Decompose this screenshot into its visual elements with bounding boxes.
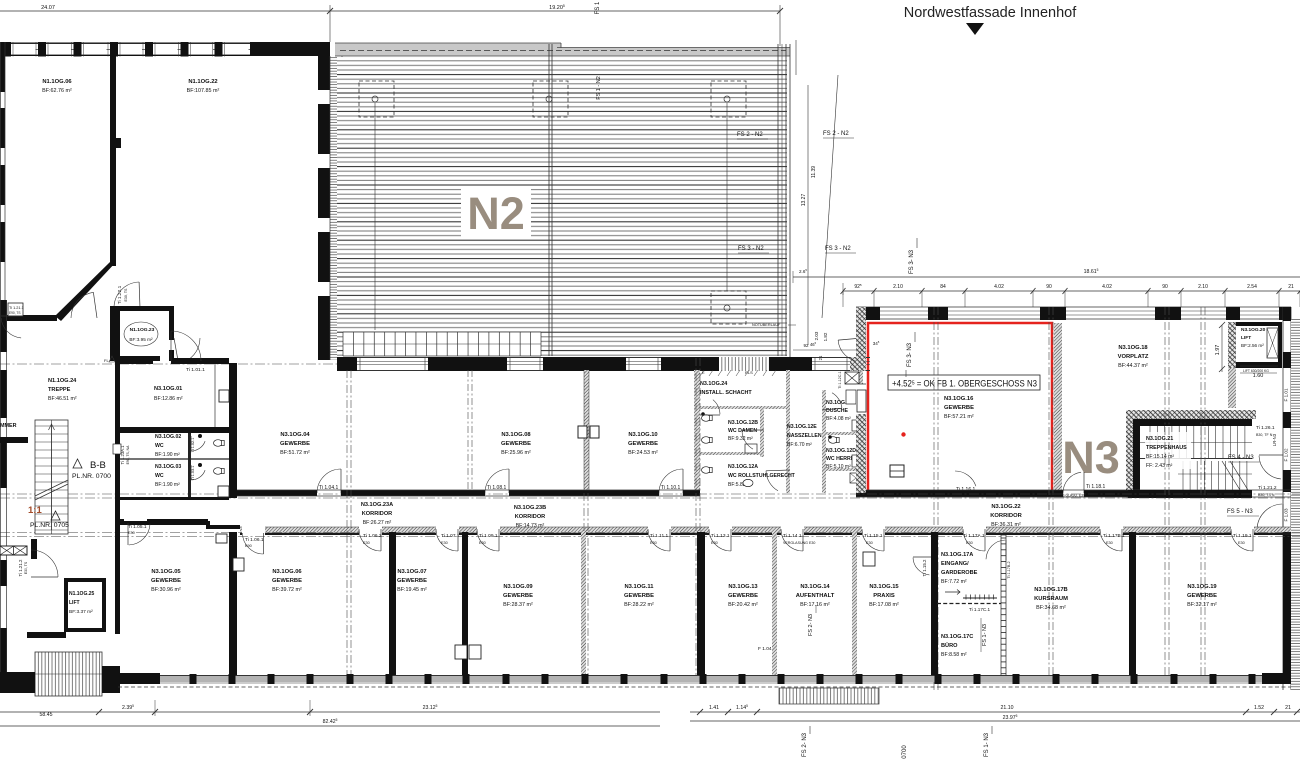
svg-text:N3.1OG.19: N3.1OG.19 <box>1187 584 1217 590</box>
svg-text:23.125: 23.125 <box>423 704 438 711</box>
svg-text:BF:2.56 m²: BF:2.56 m² <box>1241 343 1264 348</box>
svg-text:Ti 1.05.1: Ti 1.05.1 <box>128 524 147 530</box>
svg-text:WC DAMEN: WC DAMEN <box>728 428 757 434</box>
svg-text:Ti 1.02.1: Ti 1.02.1 <box>191 438 195 453</box>
svg-text:B-B: B-B <box>90 460 106 471</box>
svg-text:BF:3.37 m²: BF:3.37 m² <box>69 609 93 615</box>
svg-text:Ti 1.22.1: Ti 1.22.1 <box>117 285 123 304</box>
svg-text:1.41: 1.41 <box>709 705 719 711</box>
svg-text:KORRIDOR: KORRIDOR <box>990 513 1022 519</box>
svg-text:N3.1OG.23B: N3.1OG.23B <box>514 505 546 511</box>
svg-text:F 1.01: F 1.01 <box>1284 388 1289 401</box>
svg-text:N3: N3 <box>1062 432 1120 483</box>
svg-text:BF:25.96 m²: BF:25.96 m² <box>501 450 531 456</box>
svg-text:Ti 1.13.1: Ti 1.13.1 <box>711 533 730 539</box>
svg-text:BF:3.95 m²: BF:3.95 m² <box>129 337 153 342</box>
svg-text:11.39: 11.39 <box>811 166 817 178</box>
svg-text:Ti 1.23A.1: Ti 1.23A.1 <box>120 445 125 465</box>
svg-text:F 1.02: F 1.02 <box>1284 448 1289 461</box>
svg-text:E30: E30 <box>128 531 135 535</box>
svg-text:BF:19.45 m²: BF:19.45 m² <box>397 587 427 593</box>
svg-text:1.97: 1.97 <box>1215 345 1221 356</box>
svg-text:BF:9.32 m²: BF:9.32 m² <box>728 436 753 442</box>
svg-text:VERGLASUNG E30: VERGLASUNG E30 <box>783 541 815 545</box>
svg-text:Ti 1.17B.1: Ti 1.17B.1 <box>1103 533 1125 539</box>
svg-text:1.52: 1.52 <box>1254 705 1264 711</box>
svg-text:+4.525 = OK FB 1. OBERGESCHOSS: +4.525 = OK FB 1. OBERGESCHOSS N3 <box>892 379 1037 389</box>
svg-text:BF:20.42 m²: BF:20.42 m² <box>728 602 758 608</box>
svg-text:N3.1OG.07: N3.1OG.07 <box>397 569 426 575</box>
svg-text:BF:8.58 m²: BF:8.58 m² <box>941 652 967 658</box>
svg-text:E90: E90 <box>245 544 252 548</box>
svg-text:GEWERBE: GEWERBE <box>501 441 531 447</box>
svg-text:Ti 1.17C.1: Ti 1.17C.1 <box>969 607 990 612</box>
svg-text:90: 90 <box>1162 284 1168 290</box>
svg-text:N1.1OG.24: N1.1OG.24 <box>48 378 77 384</box>
svg-text:GEWERBE: GEWERBE <box>944 405 974 411</box>
svg-text:E30: E30 <box>1106 541 1113 545</box>
svg-text:N3.1OG.10: N3.1OG.10 <box>628 432 657 438</box>
svg-text:E30: E30 <box>441 541 448 545</box>
svg-text:82.425: 82.425 <box>323 718 338 725</box>
svg-text:N3.1OG.12A: N3.1OG.12A <box>728 464 758 470</box>
svg-text:13.27: 13.27 <box>801 194 807 207</box>
svg-text:FS 3- N3: FS 3- N3 <box>909 249 915 274</box>
svg-text:KORRIDOR: KORRIDOR <box>362 511 392 517</box>
svg-text:AUFENTHALT: AUFENTHALT <box>796 593 835 599</box>
svg-text:F 1.03: F 1.03 <box>1284 508 1289 521</box>
svg-text:WC: WC <box>155 473 164 479</box>
svg-text:FS 5 - N3: FS 5 - N3 <box>1227 509 1253 515</box>
svg-text:E30: E30 <box>966 541 973 545</box>
svg-text:E30: E30 <box>1238 541 1245 545</box>
svg-text:BF:57.21 m²: BF:57.21 m² <box>944 414 974 420</box>
svg-text:FS 2 - N2: FS 2 - N2 <box>737 132 763 138</box>
svg-text:N3.1OG.06: N3.1OG.06 <box>272 569 302 575</box>
svg-text:N3.1OG.17A: N3.1OG.17A <box>941 552 973 558</box>
svg-text:WC ROLLSTUHLGERECHT: WC ROLLSTUHLGERECHT <box>728 473 796 479</box>
svg-text:N3.1OG.18: N3.1OG.18 <box>1118 345 1148 351</box>
svg-text:FS 1- N3: FS 1- N3 <box>984 732 990 757</box>
svg-text:GEWERBE: GEWERBE <box>503 593 533 599</box>
svg-text:BF:17.16 m²: BF:17.16 m² <box>800 602 830 608</box>
svg-text:Ti 1.17A.1: Ti 1.17A.1 <box>963 533 985 539</box>
svg-text:WC: WC <box>155 443 164 449</box>
svg-text:Ti 1.21.2: Ti 1.21.2 <box>18 559 23 576</box>
svg-text:E90, TS, NA: E90, TS, NA <box>126 445 130 465</box>
svg-text:N1.1OG.06: N1.1OG.06 <box>42 79 72 85</box>
svg-text:Ti 1.06.2: Ti 1.06.2 <box>363 533 382 539</box>
svg-text:FS 3- N3: FS 3- N3 <box>907 342 913 367</box>
svg-text:EINGANG/: EINGANG/ <box>941 561 969 567</box>
svg-text:E30: E30 <box>650 541 657 545</box>
svg-text:Ti 1.19.1: Ti 1.19.1 <box>1233 533 1252 539</box>
svg-text:BF:46.51 m²: BF:46.51 m² <box>48 396 77 402</box>
svg-text:N3.1OG.15: N3.1OG.15 <box>869 584 899 590</box>
svg-text:PL.NR. 0705: PL.NR. 0705 <box>30 522 69 529</box>
svg-text:N3.1OG.23A: N3.1OG.23A <box>361 502 393 508</box>
svg-text:N3.1OG.22: N3.1OG.22 <box>991 504 1020 510</box>
svg-text:N3.1OG.13: N3.1OG.13 <box>728 584 758 590</box>
svg-text:E30: E30 <box>479 541 486 545</box>
svg-text:BF:30.96 m²: BF:30.96 m² <box>151 587 181 593</box>
svg-text:N3.1OG.12D: N3.1OG.12D <box>826 448 856 454</box>
svg-text:N3.1OG.14: N3.1OG.14 <box>800 584 830 590</box>
svg-text:E90, TS: E90, TS <box>9 311 20 315</box>
svg-text:N3.1OG.24: N3.1OG.24 <box>700 381 727 387</box>
svg-text:BF:32.17 m²: BF:32.17 m² <box>1187 602 1217 608</box>
svg-text:F 1.04: F 1.04 <box>758 646 772 652</box>
svg-text:BF:51.72 m²: BF:51.72 m² <box>280 450 310 456</box>
svg-text:N3.1OG.12B: N3.1OG.12B <box>728 420 758 426</box>
svg-text:BF:6.70 m²: BF:6.70 m² <box>787 442 812 448</box>
svg-text:GEWERBE: GEWERBE <box>624 593 654 599</box>
svg-text:E30: E30 <box>711 541 718 545</box>
svg-text:BF:62.76 m²: BF:62.76 m² <box>42 88 72 94</box>
svg-text:Ti 1.01.1: Ti 1.01.1 <box>186 367 205 373</box>
svg-text:N3.1OG.01: N3.1OG.01 <box>154 386 182 392</box>
svg-text:21: 21 <box>1288 284 1294 290</box>
svg-text:Ti 1.11.1: Ti 1.11.1 <box>650 533 668 539</box>
svg-text:2.10: 2.10 <box>893 284 903 290</box>
svg-text:58.45: 58.45 <box>40 712 53 718</box>
svg-text:B30, TF N: B30, TF N <box>1256 433 1273 437</box>
svg-text:FS 1- N3: FS 1- N3 <box>982 624 988 646</box>
svg-text:N3.1OG.02: N3.1OG.02 <box>155 434 181 440</box>
svg-text:GEWERBE: GEWERBE <box>728 593 758 599</box>
svg-text:E30: E30 <box>363 541 370 545</box>
svg-text:FS 2- N3: FS 2- N3 <box>802 732 808 757</box>
svg-text:N1.1OG.23: N1.1OG.23 <box>130 327 155 333</box>
svg-text:21: 21 <box>1285 705 1291 711</box>
svg-text:N3.1OG.20: N3.1OG.20 <box>1241 327 1266 333</box>
svg-text:KURSRAUM: KURSRAUM <box>1034 596 1068 602</box>
svg-text:B30, TS N: B30, TS N <box>1258 493 1275 497</box>
svg-text:LIFT: LIFT <box>69 600 80 606</box>
svg-text:1.82: 1.82 <box>823 332 828 341</box>
svg-text:BF:15.14 m²: BF:15.14 m² <box>1146 454 1174 460</box>
svg-text:TREPPE: TREPPE <box>48 387 71 393</box>
svg-text:LIFT 630/200 KG: LIFT 630/200 KG <box>1243 369 1269 373</box>
svg-text:PL.NR. 0700: PL.NR. 0700 <box>72 473 111 480</box>
svg-text:KORRIDOR: KORRIDOR <box>515 514 545 520</box>
svg-text:N3.1OG.08: N3.1OG.08 <box>501 432 531 438</box>
svg-text:N3.1OG.17C: N3.1OG.17C <box>941 634 973 640</box>
svg-text:RLS: RLS <box>745 370 753 375</box>
svg-text:BF:26.27 m²: BF:26.27 m² <box>363 520 392 526</box>
svg-text:Ti 1.12C.1: Ti 1.12C.1 <box>838 371 842 388</box>
svg-text:GEWERBE: GEWERBE <box>628 441 658 447</box>
svg-text:GARDEROBE: GARDEROBE <box>941 570 978 576</box>
svg-text:N3.1OG.16: N3.1OG.16 <box>944 396 974 402</box>
svg-text:NASSZELLEN: NASSZELLEN <box>787 433 822 439</box>
svg-text:Ti 1.06.1: Ti 1.06.1 <box>245 537 264 543</box>
svg-text:BF:12.86 m²: BF:12.86 m² <box>154 396 183 402</box>
svg-text:90: 90 <box>1046 284 1052 290</box>
svg-text:84: 84 <box>940 284 946 290</box>
svg-text:BF:44.37 m²: BF:44.37 m² <box>1118 363 1148 369</box>
svg-text:FS 2 - N2: FS 2 - N2 <box>823 131 849 137</box>
svg-text:N3.1OG.09: N3.1OG.09 <box>503 584 533 590</box>
svg-text:24.07: 24.07 <box>41 5 55 11</box>
svg-text:Ti 1.09.1: Ti 1.09.1 <box>479 533 498 539</box>
svg-text:BF:7.72 m²: BF:7.72 m² <box>941 579 967 585</box>
svg-text:GEWERBE: GEWERBE <box>272 578 302 584</box>
svg-text:BF:1.90 m²: BF:1.90 m² <box>155 482 180 488</box>
svg-text:4.02: 4.02 <box>1102 284 1112 290</box>
svg-text:INSTALL. SCHACHT: INSTALL. SCHACHT <box>700 390 752 396</box>
svg-text:BF:17.08 m²: BF:17.08 m² <box>869 602 899 608</box>
svg-text:92: 92 <box>803 343 809 348</box>
svg-text:PRAXIS: PRAXIS <box>873 593 895 599</box>
svg-text:BF:24.53 m²: BF:24.53 m² <box>628 450 658 456</box>
svg-text:GEWERBE: GEWERBE <box>151 578 181 584</box>
svg-text:Ti 1.03.1: Ti 1.03.1 <box>191 466 195 481</box>
svg-text:VORPLATZ: VORPLATZ <box>1118 354 1149 360</box>
svg-text:Nordwestfassade Innenhof: Nordwestfassade Innenhof <box>904 5 1077 21</box>
svg-text:N3.1OG.05: N3.1OG.05 <box>151 569 181 575</box>
svg-text:2.10: 2.10 <box>1198 284 1208 290</box>
svg-text:4.02: 4.02 <box>994 284 1004 290</box>
svg-text:FS 3 - N2: FS 3 - N2 <box>738 246 764 252</box>
svg-text:E: E <box>702 370 705 375</box>
svg-text:GEWERBE: GEWERBE <box>1187 593 1217 599</box>
svg-text:Ti 1.21.1: Ti 1.21.1 <box>9 306 24 310</box>
svg-text:MMER: MMER <box>0 423 17 429</box>
svg-text:BF:4.08 m²: BF:4.08 m² <box>826 416 851 422</box>
svg-text:Ti 1.17B.2: Ti 1.17B.2 <box>1007 561 1011 578</box>
svg-text:TREPPENHAUS: TREPPENHAUS <box>1146 445 1187 451</box>
svg-text:BÜRO: BÜRO <box>941 642 958 649</box>
svg-text:FS 1: FS 1 <box>595 1 601 14</box>
svg-text:Ti 1.18.1: Ti 1.18.1 <box>1086 484 1105 490</box>
svg-text:1:1: 1:1 <box>28 505 42 516</box>
svg-text:BF:28.37 m²: BF:28.37 m² <box>503 602 533 608</box>
svg-text:FF: 2.43 m²: FF: 2.43 m² <box>1146 463 1173 469</box>
svg-text:Ti 1.15.1: Ti 1.15.1 <box>864 533 883 539</box>
svg-text:19.205: 19.205 <box>549 4 565 11</box>
svg-text:FS 2- N3: FS 2- N3 <box>808 614 814 636</box>
svg-text:N1.1OG.22: N1.1OG.22 <box>188 79 217 85</box>
svg-text:FS 1 - N2: FS 1 - N2 <box>596 76 602 100</box>
svg-text:N3.1OG.12E: N3.1OG.12E <box>787 424 817 430</box>
svg-text:LIFT: LIFT <box>1241 335 1251 341</box>
svg-text:E30: E30 <box>866 541 873 545</box>
svg-text:FS 4 - N3: FS 4 - N3 <box>1228 455 1254 461</box>
svg-text:E30, TS: E30, TS <box>124 288 128 302</box>
svg-text:2.03: 2.03 <box>814 331 819 340</box>
svg-text:N1.1OG.25: N1.1OG.25 <box>69 591 95 597</box>
svg-text:BF:28.22 m²: BF:28.22 m² <box>624 602 654 608</box>
svg-text:23.975: 23.975 <box>1003 714 1018 721</box>
svg-text:E30, TS: E30, TS <box>24 561 28 574</box>
svg-text:FS 3 - N2: FS 3 - N2 <box>825 246 851 252</box>
svg-text:BF:39.72 m²: BF:39.72 m² <box>272 587 302 593</box>
svg-text:N2: N2 <box>467 188 525 239</box>
svg-text:2.54: 2.54 <box>1247 284 1257 290</box>
svg-text:Ti 1.14.1: Ti 1.14.1 <box>783 533 802 539</box>
svg-text:GEWERBE: GEWERBE <box>280 441 310 447</box>
svg-text:N3.1OG.04: N3.1OG.04 <box>280 432 310 438</box>
svg-text:1.60: 1.60 <box>1253 373 1264 379</box>
svg-text:GEWERBE: GEWERBE <box>397 578 427 584</box>
svg-text:0700: 0700 <box>902 745 908 759</box>
svg-text:BF:107.85 m²: BF:107.85 m² <box>187 88 220 94</box>
svg-text:N3.1OG.03: N3.1OG.03 <box>155 464 181 470</box>
svg-text:LR-N3: LR-N3 <box>1272 433 1277 446</box>
svg-text:N3.1OG.11: N3.1OG.11 <box>624 584 654 590</box>
svg-text:Ti 1.26.1: Ti 1.26.1 <box>1256 425 1275 431</box>
svg-text:21.10: 21.10 <box>1001 705 1014 711</box>
svg-text:18.615: 18.615 <box>1084 268 1099 275</box>
svg-text:N3.1OG.17B: N3.1OG.17B <box>1034 587 1068 593</box>
svg-text:NOTÜBERLAUF: NOTÜBERLAUF <box>752 323 781 327</box>
svg-text:Ti 1.07.1: Ti 1.07.1 <box>441 533 460 539</box>
svg-text:BF:34.68 m²: BF:34.68 m² <box>1036 605 1066 611</box>
svg-text:BF:1.90 m²: BF:1.90 m² <box>155 452 180 458</box>
svg-text:BF:5.10 m²: BF:5.10 m² <box>826 464 851 470</box>
